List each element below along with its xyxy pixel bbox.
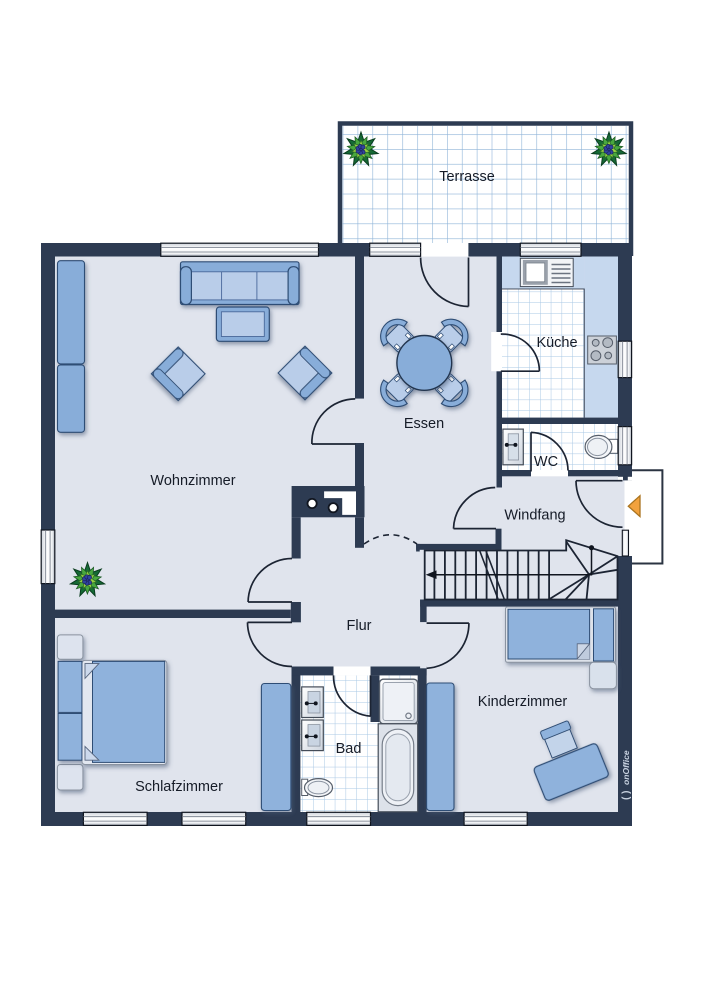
svg-text:Flur: Flur: [347, 618, 372, 634]
svg-text:( ): ( ): [621, 791, 632, 800]
svg-text:Windfang: Windfang: [504, 508, 565, 524]
svg-text:Wohnzimmer: Wohnzimmer: [150, 473, 235, 489]
svg-text:Terrasse: Terrasse: [439, 169, 495, 185]
svg-text:Küche: Küche: [536, 335, 577, 351]
svg-text:onOffice: onOffice: [621, 750, 631, 785]
svg-text:Bad: Bad: [336, 741, 362, 757]
svg-text:Kinderzimmer: Kinderzimmer: [478, 694, 568, 710]
svg-text:Essen: Essen: [404, 416, 444, 432]
svg-text:WC: WC: [534, 454, 558, 470]
svg-text:Schlafzimmer: Schlafzimmer: [135, 779, 223, 795]
